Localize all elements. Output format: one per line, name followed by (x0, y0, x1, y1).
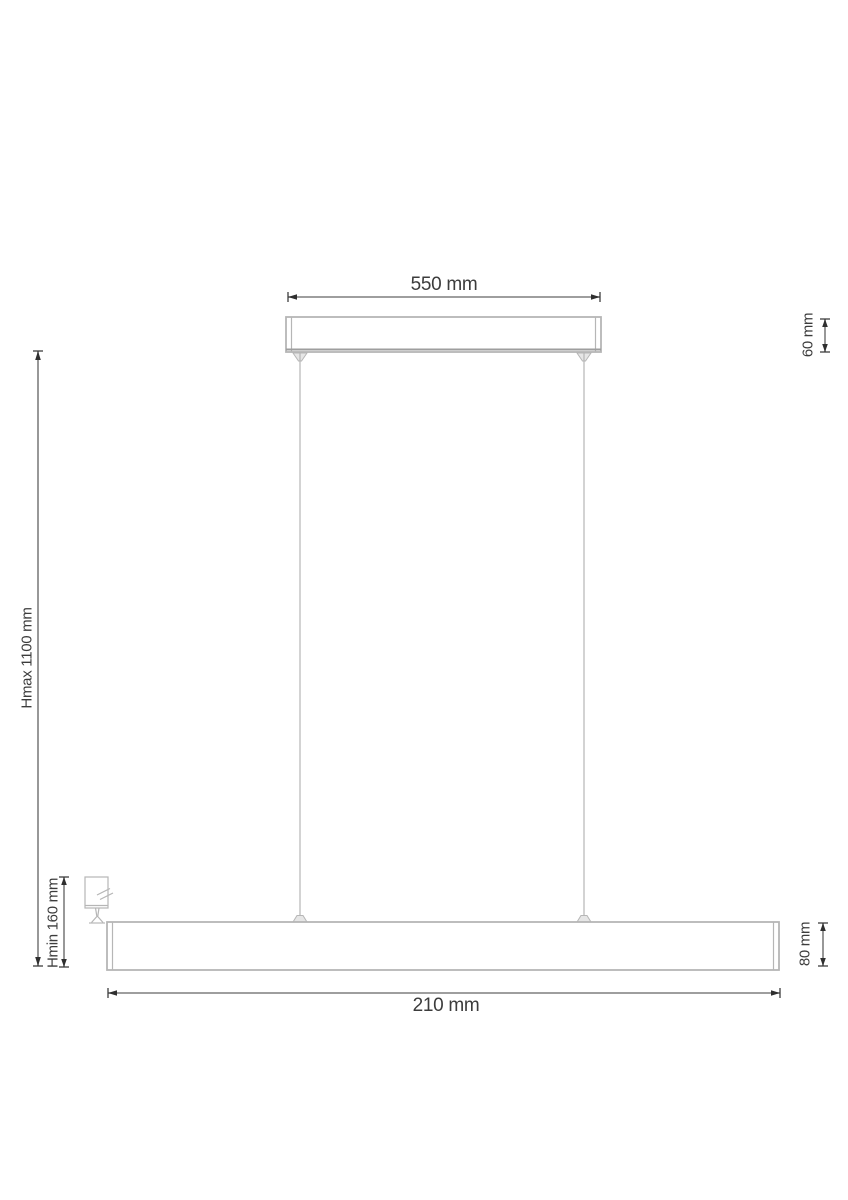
light-bar-outline (107, 922, 779, 970)
pendant-lamp-dimension-diagram: 550 mm 60 mm Hmax 1100 mm Hmin 160 mm 80… (0, 0, 848, 1200)
dim-arrow-bottom (822, 344, 828, 352)
dimension-bar-height (818, 923, 828, 966)
dim-arrow-bottom (35, 957, 41, 966)
dim-arrow-top (822, 319, 828, 327)
light-bar (107, 922, 779, 970)
canopy-outline (286, 317, 601, 352)
connector-body (85, 877, 108, 908)
dim-arrow-top (61, 877, 67, 885)
label-canopy-height: 60 mm (800, 313, 817, 357)
label-max-height: Hmax 1100 mm (19, 607, 36, 708)
connector-foot (92, 916, 104, 923)
suspension-wires (293, 353, 591, 922)
connector-stem-left (96, 908, 97, 916)
dim-arrow-left (288, 294, 297, 300)
power-connector-detail (85, 877, 113, 923)
label-canopy-width: 550 mm (411, 274, 478, 296)
left-wire-bottom-fitting (293, 916, 307, 923)
dim-arrow-right (591, 294, 600, 300)
diagram-canvas (0, 0, 848, 1200)
label-min-height: Hmin 160 mm (45, 878, 62, 968)
dim-arrow-bottom (61, 959, 67, 967)
label-bar-length: 210 mm (413, 995, 480, 1017)
ceiling-canopy (286, 317, 601, 352)
dim-arrow-right (771, 990, 780, 996)
label-bar-height: 80 mm (797, 922, 814, 966)
dim-arrow-top (35, 351, 41, 360)
dim-arrow-left (108, 990, 117, 996)
dim-arrow-bottom (820, 958, 826, 966)
connector-stem-right (98, 908, 99, 916)
connector-clip-mark-2 (100, 893, 113, 900)
dimension-canopy-height (820, 319, 830, 352)
dim-arrow-top (820, 923, 826, 931)
right-wire-bottom-fitting (577, 916, 591, 923)
